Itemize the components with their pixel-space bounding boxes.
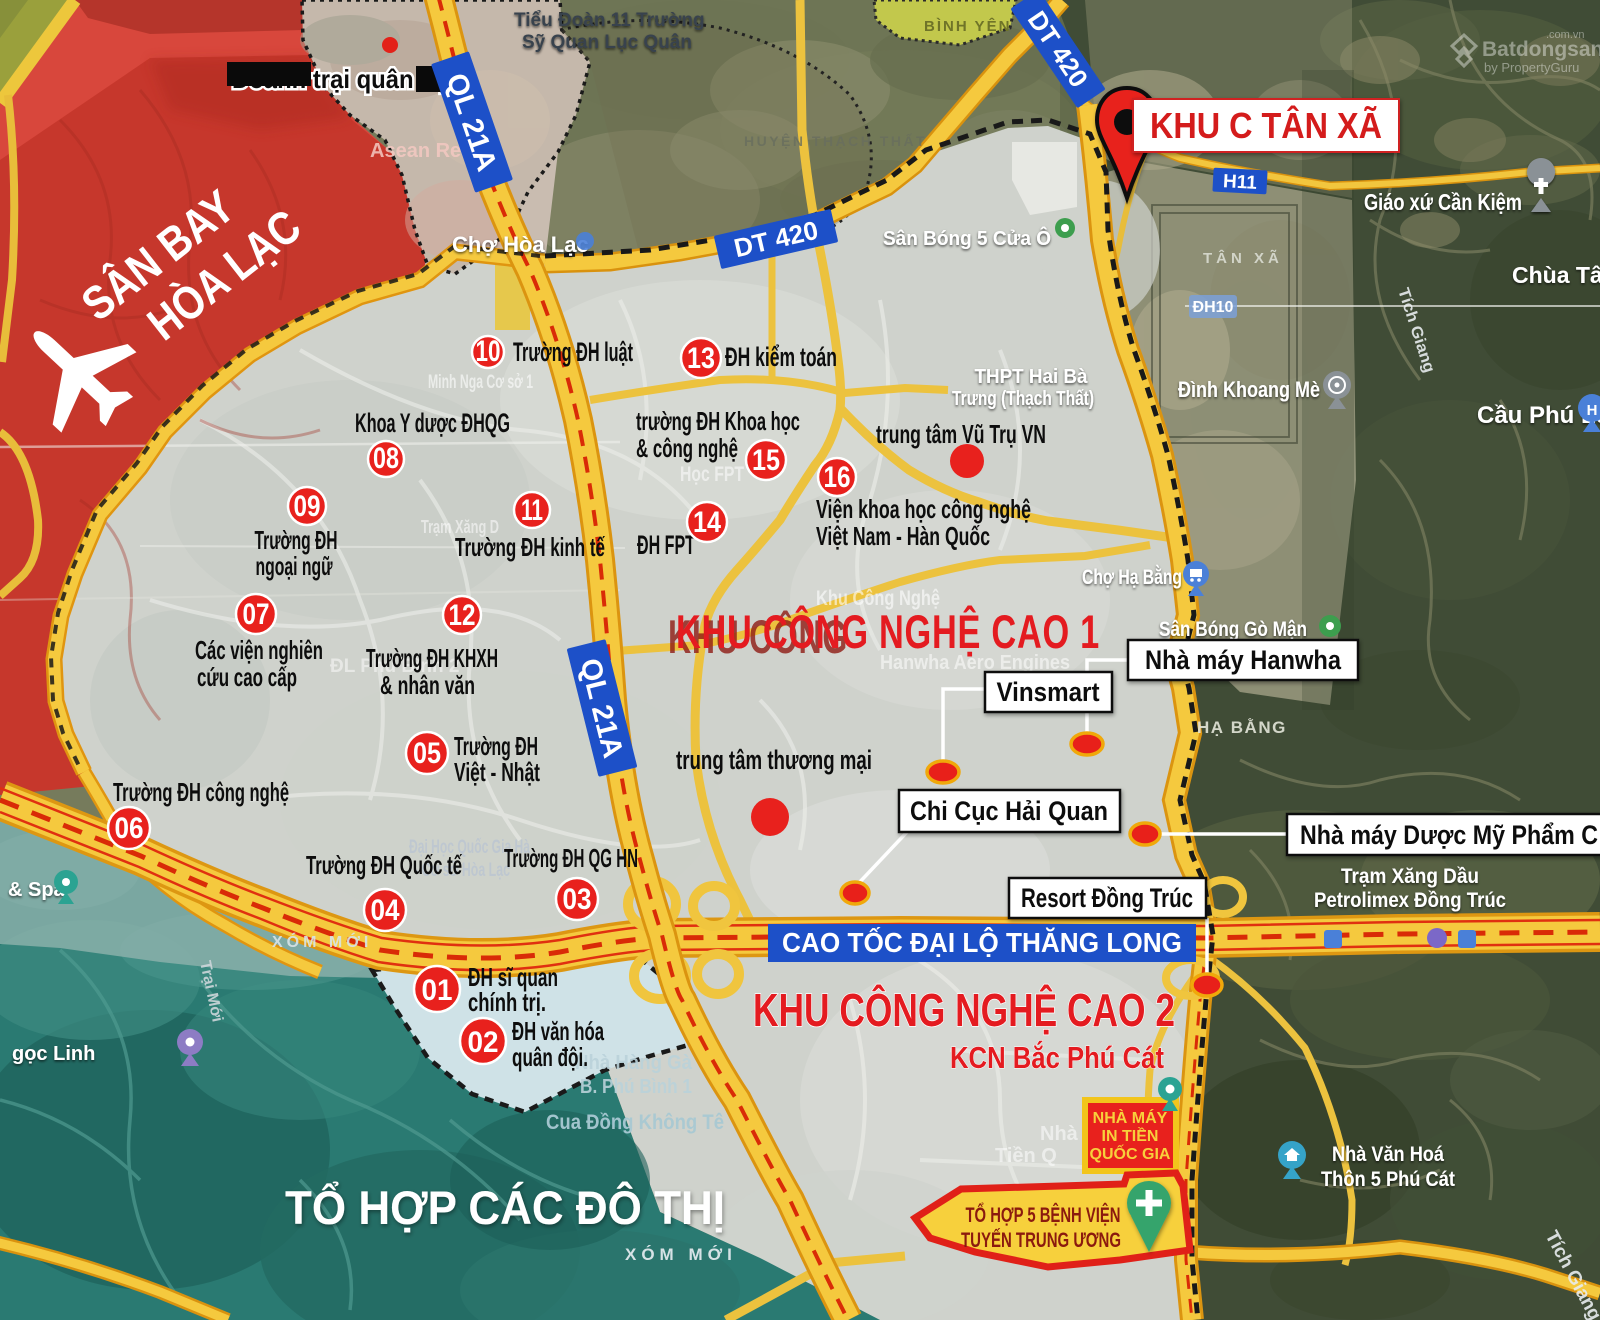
svg-text:08: 08 [373,442,399,475]
svg-text:XÓM MỚI: XÓM MỚI [272,932,372,951]
svg-text:Sân Bóng 5 Cửa Ô: Sân Bóng 5 Cửa Ô [883,226,1051,250]
svg-text:04: 04 [371,894,400,927]
svg-text:CAO TỐC ĐẠI LỘ THĂNG LONG: CAO TỐC ĐẠI LỘ THĂNG LONG [782,926,1182,958]
svg-text:07: 07 [243,598,270,631]
svg-text:02: 02 [468,1026,499,1059]
svg-text:IN TIỀN: IN TIỀN [1102,1126,1159,1145]
svg-text:NHÀ MÁY: NHÀ MÁY [1093,1108,1168,1127]
svg-text:ngoại ngữ: ngoại ngữ [256,551,333,581]
svg-text:QUỐC GIA: QUỐC GIA [1090,1143,1171,1163]
svg-text:Nhà: Nhà [1040,1123,1079,1145]
svg-text:trường ĐH Khoa học: trường ĐH Khoa học [636,406,800,436]
svg-text:Giáo xứ Cần Kiệm: Giáo xứ Cần Kiệm [1364,189,1522,215]
svg-text:.com.vn: .com.vn [1546,29,1585,41]
svg-text:11: 11 [521,494,543,527]
svg-text:Trường ĐH Quốc tế: Trường ĐH Quốc tế [306,850,462,880]
svg-text:Tiền Q: Tiền Q [995,1145,1057,1167]
svg-text:quân đội.: quân đội. [512,1042,588,1072]
svg-text:Trạm Xăng Dầu: Trạm Xăng Dầu [1341,865,1479,888]
svg-text:& nhân văn: & nhân văn [380,670,475,700]
svg-text:Khoa Y dược ĐHQG: Khoa Y dược ĐHQG [355,408,510,438]
svg-text:trung tâm thương mại: trung tâm thương mại [676,745,872,775]
svg-text:10: 10 [476,335,501,368]
svg-text:TỔ HỢP CÁC ĐÔ THỊ: TỔ HỢP CÁC ĐÔ THỊ [285,1181,725,1234]
svg-text:KHU CÔNG NGHỆ CAO 2: KHU CÔNG NGHỆ CAO 2 [753,984,1175,1036]
svg-text:Sân Bóng Gò Mận: Sân Bóng Gò Mận [1159,618,1307,641]
svg-text:Trường ĐH luật: Trường ĐH luật [513,337,633,367]
svg-text:Nhà Văn Hoá: Nhà Văn Hoá [1332,1143,1444,1166]
svg-text:Resort Đồng Trúc: Resort Đồng Trúc [1021,883,1193,913]
svg-text:Sỹ Quan Lục Quân: Sỹ Quan Lục Quân [522,32,692,53]
svg-text:Chợ Hạ Bằng: Chợ Hạ Bằng [1082,565,1182,589]
svg-text:BÌNH YÊN: BÌNH YÊN [924,17,1011,35]
svg-text:Đình Khoang Mè: Đình Khoang Mè [1178,377,1320,402]
svg-text:09: 09 [294,490,321,523]
svg-text:trung tâm Vũ Trụ VN: trung tâm Vũ Trụ VN [876,419,1046,449]
svg-text:HUYỆN THẠCH THẤT: HUYỆN THẠCH THẤT [744,132,927,149]
svg-text:Nhà máy Dược Mỹ Phẩm C: Nhà máy Dược Mỹ Phẩm C [1300,820,1598,850]
svg-text:TÂN XÃ: TÂN XÃ [1203,249,1283,267]
svg-text:cứu cao cấp: cứu cao cấp [197,662,297,692]
svg-text:Học FPT: Học FPT [680,463,744,486]
svg-text:B. Phú Bình 1: B. Phú Bình 1 [580,1076,692,1098]
svg-text:by PropertyGuru: by PropertyGuru [1484,60,1579,75]
svg-text:Thôn 5 Phú Cát: Thôn 5 Phú Cát [1321,1168,1455,1191]
svg-text:01: 01 [422,974,453,1007]
svg-text:Chùa Tây P: Chùa Tây P [1512,262,1600,288]
svg-text:HẠ BẰNG: HẠ BẰNG [1197,718,1287,737]
svg-text:Trường ĐH công nghệ: Trường ĐH công nghệ [113,777,289,807]
svg-text:12: 12 [449,599,476,632]
svg-text:Batdongsan: Batdongsan [1482,38,1600,61]
svg-text:XÓM MỚI: XÓM MỚI [625,1245,737,1264]
svg-text:Chợ Hòa Lạc: Chợ Hòa Lạc [452,232,589,257]
svg-text:Petrolimex Đồng Trúc: Petrolimex Đồng Trúc [1314,889,1506,912]
svg-text:Minh Nga Cơ sở 1: Minh Nga Cơ sở 1 [428,372,533,393]
svg-text:Tiểu Đoàn 11 Trường: Tiểu Đoàn 11 Trường [514,10,705,31]
svg-text:06: 06 [115,812,144,845]
svg-text:Vinsmart: Vinsmart [997,677,1100,707]
svg-text:THPT Hai Bà: THPT Hai Bà [975,366,1089,388]
svg-text:& công nghệ: & công nghệ [636,433,738,463]
svg-text:Trường ĐH KHXH: Trường ĐH KHXH [366,643,498,673]
svg-text:chính trị.: chính trị. [468,987,546,1017]
svg-text:14: 14 [693,506,721,539]
svg-text:Nhà Hàng Gà: Nhà Hàng Gà [575,1052,693,1074]
svg-text:ĐH FPT: ĐH FPT [637,530,695,560]
svg-text:gọc Linh: gọc Linh [12,1043,95,1065]
svg-text:Chi Cục Hải Quan: Chi Cục Hải Quan [910,796,1108,826]
svg-text:Việt - Nhật: Việt - Nhật [454,757,540,787]
svg-text:Asean Res: Asean Res [370,140,472,162]
svg-text:15: 15 [752,444,780,477]
svg-text:16: 16 [824,461,851,494]
svg-text:Việt Nam - Hàn Quốc: Việt Nam - Hàn Quốc [816,521,990,551]
svg-text:KHU CÔNG NGHỆ CAO 1: KHU CÔNG NGHỆ CAO 1 [676,605,1100,658]
svg-text:Trưng (Thạch Thất): Trưng (Thạch Thất) [952,388,1094,410]
svg-text:05: 05 [413,737,441,770]
svg-text:ĐH10: ĐH10 [1193,299,1234,316]
svg-text:03: 03 [563,883,592,916]
svg-text:Nhà máy Hanwha: Nhà máy Hanwha [1145,645,1342,675]
svg-text:Viện khoa học công nghệ: Viện khoa học công nghệ [816,494,1031,524]
svg-text:Trường ĐH QG HN: Trường ĐH QG HN [504,843,638,873]
svg-text:TỔ HỢP 5 BỆNH VIỆN: TỔ HỢP 5 BỆNH VIỆN [966,1203,1121,1227]
svg-text:Cua Đồng Không Tê: Cua Đồng Không Tê [546,1111,724,1134]
svg-text:H: H [1587,402,1598,419]
svg-text:Các viện nghiên: Các viện nghiên [195,635,323,665]
svg-text:KHU C TÂN XÃ: KHU C TÂN XÃ [1150,104,1382,146]
svg-text:Trường ĐH kinh tế: Trường ĐH kinh tế [455,532,605,562]
svg-text:KCN Bắc Phú Cát: KCN Bắc Phú Cát [950,1039,1164,1075]
svg-text:H11: H11 [1222,171,1257,194]
svg-text:ĐH kiểm toán: ĐH kiểm toán [725,342,837,372]
svg-text:TUYẾN TRUNG ƯƠNG: TUYẾN TRUNG ƯƠNG [961,1229,1121,1252]
svg-text:13: 13 [687,342,715,375]
